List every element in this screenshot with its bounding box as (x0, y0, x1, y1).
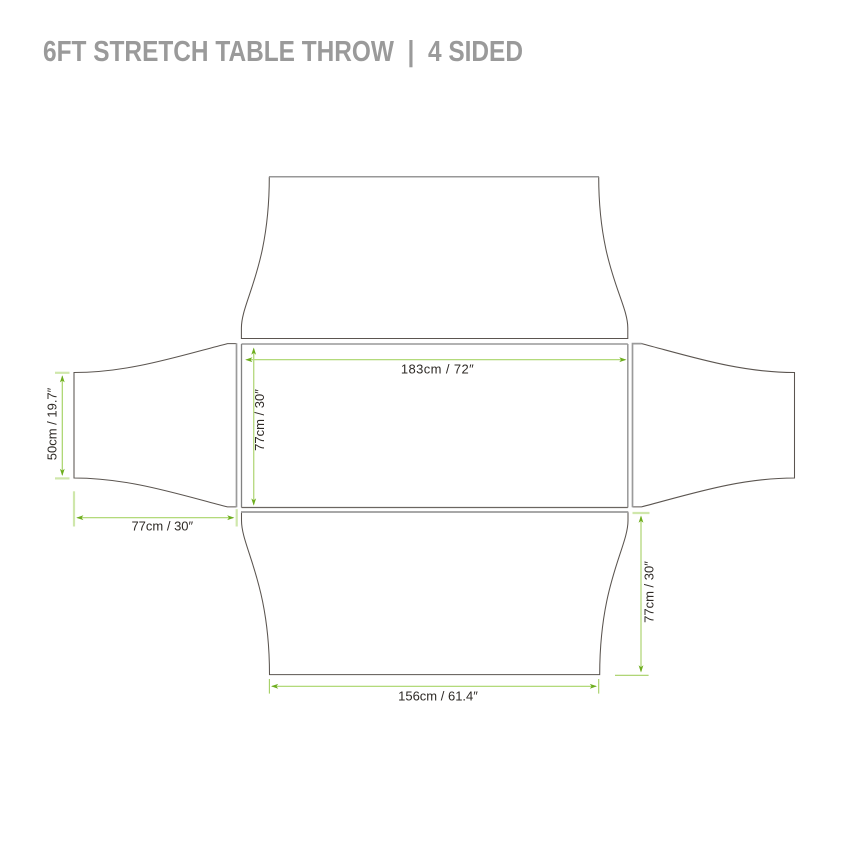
svg-text:77cm / 30″: 77cm / 30″ (252, 389, 267, 451)
svg-text:77cm / 30″: 77cm / 30″ (131, 519, 193, 534)
svg-text:6FT STRETCH TABLE THROW | 4: 6FT STRETCH TABLE THROW | 4 SIDED (43, 36, 523, 68)
svg-text:183cm / 72″: 183cm / 72″ (401, 362, 474, 377)
svg-text:156cm / 61.4″: 156cm / 61.4″ (398, 689, 478, 704)
svg-text:50cm / 19.7″: 50cm / 19.7″ (45, 387, 60, 460)
svg-text:77cm / 30″: 77cm / 30″ (642, 561, 657, 623)
